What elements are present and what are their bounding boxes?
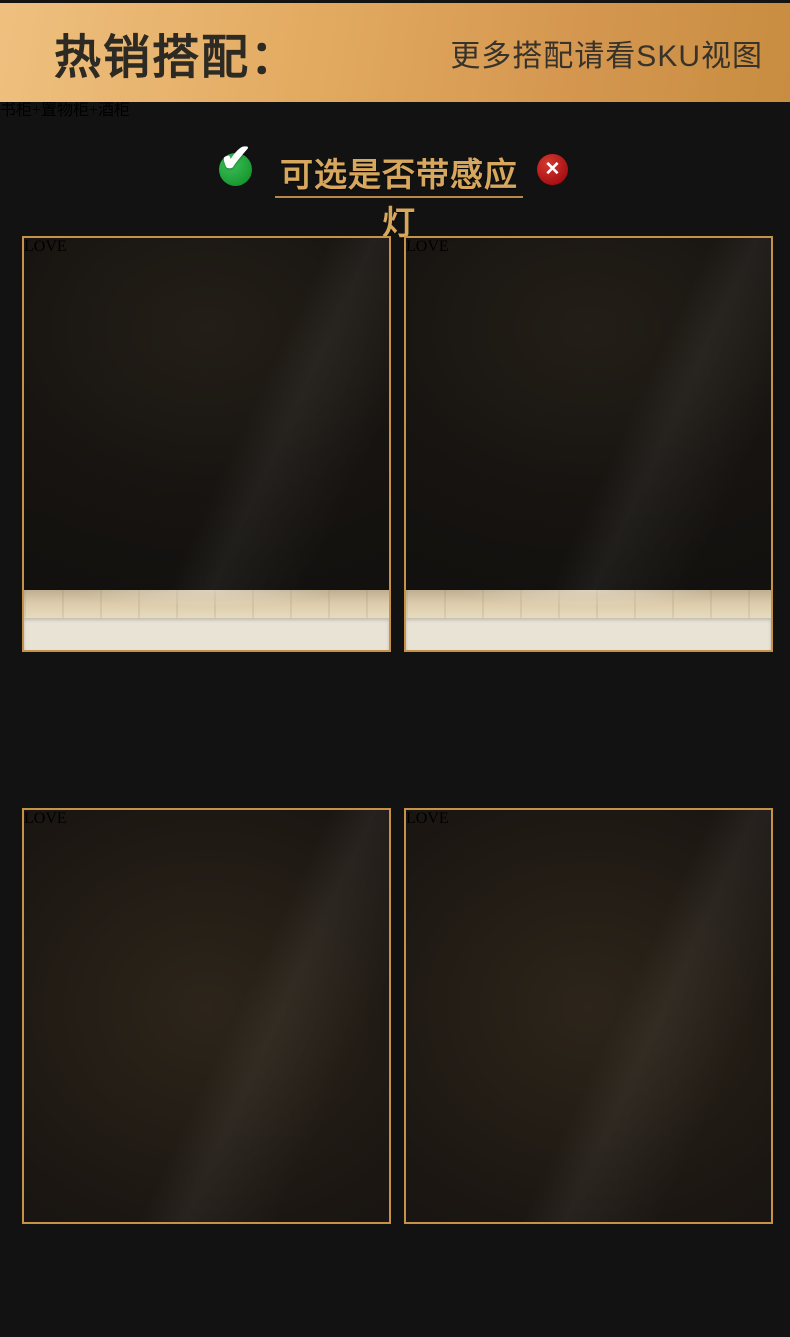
combo-photo-1: LOVE	[24, 238, 389, 650]
wood-floor	[406, 1178, 771, 1214]
light-sheen	[24, 810, 389, 1222]
combo-frame-2[interactable]: LOVE	[404, 236, 773, 652]
banner-title: 热销搭配：	[54, 18, 299, 87]
banner-note: 更多搭配请看SKU视图	[450, 31, 763, 75]
light-sheen	[406, 810, 771, 1222]
light-sheen	[406, 238, 771, 650]
wood-floor	[24, 1178, 389, 1214]
cross-glyph: ✕	[545, 158, 561, 181]
product-detail-section: 热销搭配： 更多搭配请看SKU视图 ✔ 可选是否带感应灯 ✕ LOVE	[0, 0, 790, 1337]
combo-frame-3[interactable]: LOVE	[22, 808, 391, 1224]
check-glyph: ✔	[220, 140, 252, 178]
carpet	[406, 618, 771, 650]
cross-icon: ✕	[537, 154, 568, 185]
hot-combo-banner: 热销搭配： 更多搭配请看SKU视图	[0, 0, 790, 102]
combo-frame-4[interactable]: LOVE	[404, 808, 773, 1224]
wood-floor	[406, 590, 771, 619]
light-sheen	[24, 238, 389, 650]
combo-photo-2: LOVE	[406, 238, 771, 650]
carpet	[24, 618, 389, 650]
combo-photo-4: LOVE	[406, 810, 771, 1222]
wood-floor	[24, 590, 389, 619]
combo-photo-3: LOVE	[24, 810, 389, 1222]
check-icon: ✔	[219, 153, 252, 186]
combo-frame-1[interactable]: LOVE	[22, 236, 391, 652]
gold-underline	[275, 196, 523, 198]
